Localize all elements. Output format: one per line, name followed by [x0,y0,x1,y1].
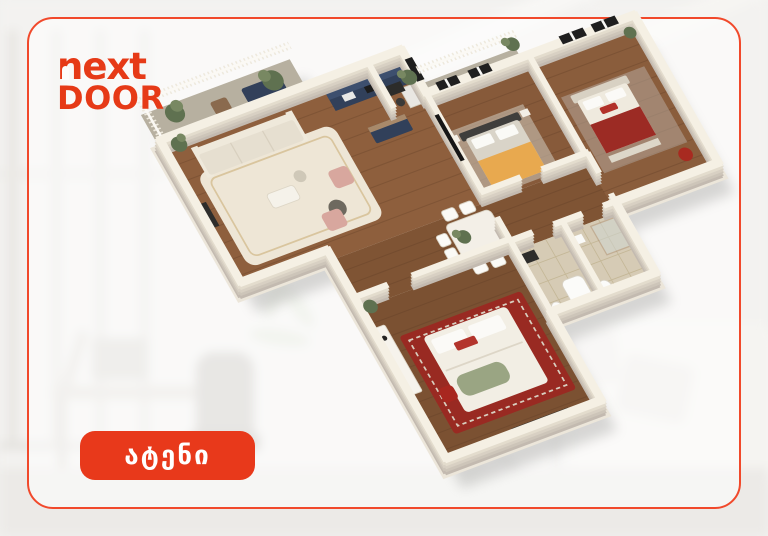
logo-line-2: DOOR [57,84,165,113]
door-icon [62,66,69,80]
logo-line-1: next [57,50,165,84]
banner: next DOOR ატენი [0,0,768,536]
brand-logo: next DOOR [57,50,165,113]
location-badge-button[interactable]: ატენი [80,431,255,480]
